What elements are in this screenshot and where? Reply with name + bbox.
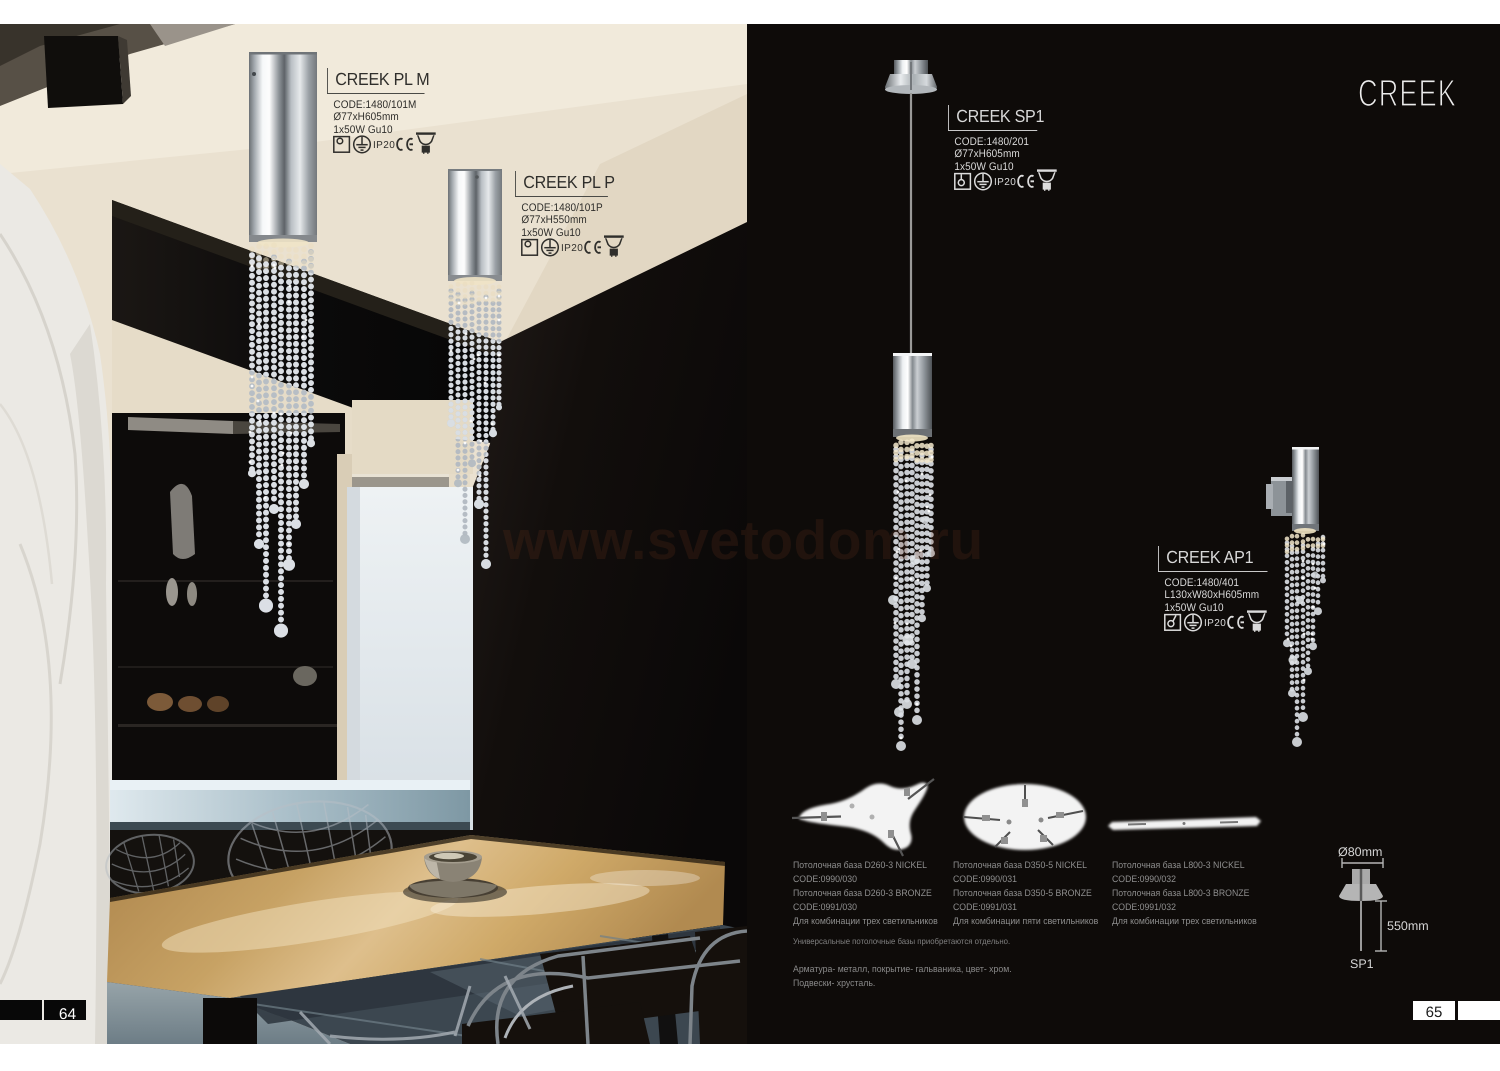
svg-text:IP20: IP20 bbox=[561, 243, 583, 254]
svg-text:IP20: IP20 bbox=[373, 140, 395, 151]
svg-text:IP20: IP20 bbox=[994, 177, 1016, 188]
svg-text:IP20: IP20 bbox=[1204, 618, 1226, 629]
